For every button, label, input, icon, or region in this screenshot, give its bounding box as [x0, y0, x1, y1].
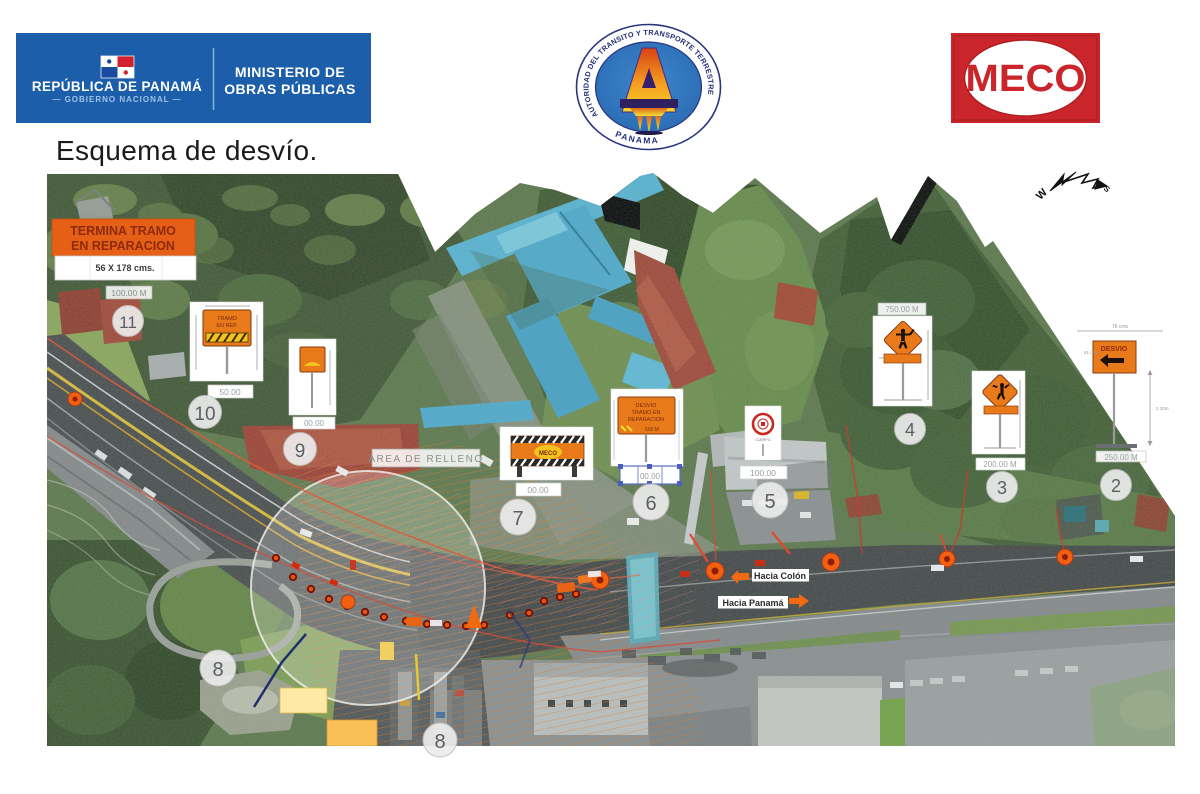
svg-text:8: 8: [434, 731, 445, 753]
svg-text:3: 3: [997, 478, 1007, 498]
svg-text:750.00 M: 750.00 M: [885, 305, 919, 314]
svg-text:REPARACION: REPARACION: [628, 417, 664, 423]
svg-text:MECO: MECO: [966, 58, 1086, 100]
svg-text:CUERPO: CUERPO: [756, 438, 771, 442]
svg-text:9: 9: [295, 441, 306, 462]
svg-text:MINISTERIO DE: MINISTERIO DE: [235, 64, 345, 80]
svg-text:500 M: 500 M: [645, 427, 659, 433]
svg-text:00.00: 00.00: [304, 419, 325, 428]
svg-text:AREA DE RELLENO: AREA DE RELLENO: [368, 454, 483, 465]
svg-text:Hacia Panamá: Hacia Panamá: [722, 598, 784, 608]
svg-text:76 cms: 76 cms: [1112, 324, 1129, 330]
svg-text:TERMINA TRAMO: TERMINA TRAMO: [70, 224, 176, 238]
svg-text:REPÚBLICA DE PANAMÁ: REPÚBLICA DE PANAMÁ: [32, 79, 202, 94]
svg-text:50.00: 50.00: [219, 387, 241, 397]
svg-text:100.00 M: 100.00 M: [111, 288, 146, 298]
svg-text:DESVIO: DESVIO: [636, 403, 658, 409]
svg-text:OBRAS PÚBLICAS: OBRAS PÚBLICAS: [224, 80, 356, 97]
svg-text:DESVIO: DESVIO: [1101, 346, 1128, 353]
svg-text:250.00 M: 250.00 M: [1104, 453, 1138, 462]
svg-text:00.00: 00.00: [527, 485, 549, 495]
svg-text:7: 7: [512, 508, 523, 530]
svg-text:11: 11: [119, 313, 137, 332]
svg-text:Hacia Colón: Hacia Colón: [754, 571, 806, 581]
svg-text:MECO: MECO: [539, 451, 557, 457]
svg-text:— GOBIERNO NACIONAL —: — GOBIERNO NACIONAL —: [52, 95, 181, 104]
svg-text:61 cms: 61 cms: [1084, 350, 1099, 355]
svg-text:6: 6: [645, 493, 656, 515]
svg-text:8: 8: [212, 659, 223, 681]
svg-text:5: 5: [764, 491, 775, 513]
svg-text:EN REPARACION: EN REPARACION: [71, 239, 175, 253]
svg-text:00.00: 00.00: [640, 472, 661, 481]
svg-text:10: 10: [194, 404, 215, 425]
svg-text:4: 4: [905, 420, 915, 440]
svg-text:TRAMO EN: TRAMO EN: [631, 410, 660, 416]
svg-text:2: 2: [1111, 476, 1121, 496]
svg-text:Esquema de desvío.: Esquema de desvío.: [56, 135, 318, 166]
svg-text:56 X 178 cms.: 56 X 178 cms.: [95, 263, 154, 273]
svg-text:TRAMO: TRAMO: [217, 316, 238, 322]
svg-text:EN REP.: EN REP.: [216, 323, 238, 329]
svg-text:100.00: 100.00: [750, 468, 776, 478]
svg-text:200.00 M: 200.00 M: [983, 460, 1017, 469]
svg-text:2.20m: 2.20m: [1156, 406, 1169, 411]
